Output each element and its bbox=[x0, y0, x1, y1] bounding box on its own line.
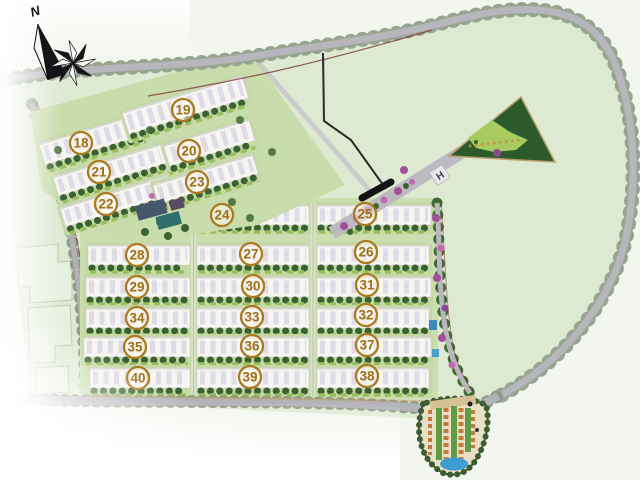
svg-text:34: 34 bbox=[129, 311, 145, 326]
site-plan-page: H 18192021222324252827262930313433323536… bbox=[0, 0, 640, 480]
svg-text:29: 29 bbox=[129, 280, 144, 295]
svg-text:36: 36 bbox=[244, 339, 260, 354]
block-badge-23: 23 bbox=[186, 171, 208, 193]
block-badge-31: 31 bbox=[356, 274, 378, 296]
svg-text:35: 35 bbox=[127, 340, 143, 355]
svg-text:40: 40 bbox=[130, 371, 145, 386]
block-badge-21: 21 bbox=[88, 161, 110, 183]
block-badge-19: 19 bbox=[172, 99, 194, 121]
block-badge-29: 29 bbox=[126, 276, 148, 298]
svg-text:39: 39 bbox=[242, 370, 257, 385]
block-badge-37: 37 bbox=[356, 334, 378, 356]
svg-text:24: 24 bbox=[214, 208, 230, 223]
block-badge-24: 24 bbox=[211, 204, 233, 226]
block-badge-38: 38 bbox=[356, 365, 378, 387]
svg-text:28: 28 bbox=[129, 248, 145, 263]
block-badge-25: 25 bbox=[354, 203, 376, 225]
block-badge-35: 35 bbox=[124, 336, 146, 358]
svg-text:20: 20 bbox=[181, 144, 196, 159]
svg-text:33: 33 bbox=[244, 310, 260, 325]
block-badge-39: 39 bbox=[239, 366, 261, 388]
svg-text:30: 30 bbox=[245, 279, 260, 294]
compass-north-icon: N bbox=[8, 2, 118, 102]
svg-text:37: 37 bbox=[359, 338, 374, 353]
svg-text:22: 22 bbox=[98, 197, 113, 212]
svg-text:31: 31 bbox=[359, 278, 375, 293]
block-badge-22: 22 bbox=[95, 193, 117, 215]
block-badge-34: 34 bbox=[126, 307, 148, 329]
block-badge-32: 32 bbox=[355, 304, 377, 326]
svg-text:32: 32 bbox=[358, 308, 373, 323]
block-badge-20: 20 bbox=[178, 140, 200, 162]
svg-text:26: 26 bbox=[358, 245, 374, 260]
block-badge-36: 36 bbox=[241, 335, 263, 357]
garden-pool bbox=[440, 458, 468, 471]
svg-text:18: 18 bbox=[73, 136, 89, 151]
block-badge-26: 26 bbox=[355, 241, 377, 263]
svg-text:21: 21 bbox=[91, 165, 107, 180]
svg-text:25: 25 bbox=[357, 207, 373, 222]
block-badge-33: 33 bbox=[241, 306, 263, 328]
svg-text:23: 23 bbox=[189, 175, 205, 190]
svg-text:38: 38 bbox=[359, 369, 375, 384]
svg-text:19: 19 bbox=[175, 103, 190, 118]
garden-marker-dot bbox=[468, 402, 473, 407]
svg-text:27: 27 bbox=[243, 247, 258, 262]
block-badge-28: 28 bbox=[126, 244, 148, 266]
block-badge-30: 30 bbox=[242, 275, 264, 297]
block-badge-27: 27 bbox=[240, 243, 262, 265]
compass-pinwheel bbox=[50, 40, 95, 85]
block-badge-18: 18 bbox=[70, 132, 92, 154]
compass-n-label: N bbox=[28, 2, 42, 19]
block-badge-40: 40 bbox=[127, 367, 149, 389]
